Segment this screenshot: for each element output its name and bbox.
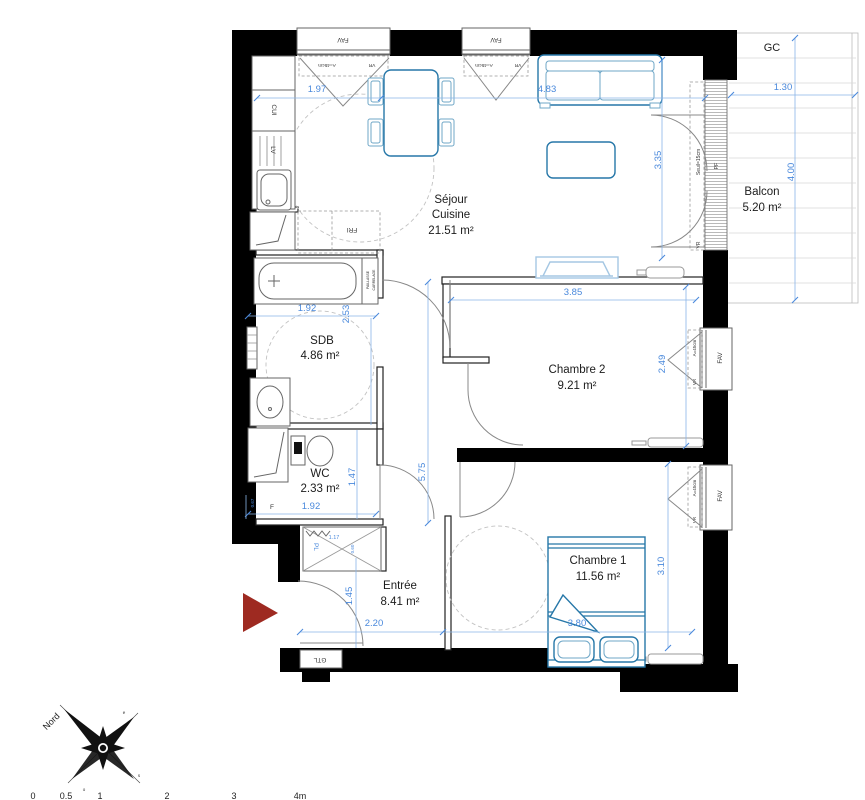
vr-label: VR	[368, 62, 375, 68]
radiator-sejour	[536, 257, 618, 278]
balcon-name: Balcon	[744, 186, 779, 198]
window-chambre2: FAV A=45cm VR	[668, 328, 732, 390]
dim-balcony-width: 1.30	[774, 82, 793, 93]
dining-table	[368, 70, 454, 156]
radiator-chambre2	[632, 438, 703, 447]
fri-label: FRI	[347, 226, 358, 233]
dim-sdb-width: 1.92	[298, 303, 317, 314]
sdb-area: 4.86 m²	[301, 350, 340, 362]
carrelage-label: CARRELAGE	[372, 269, 376, 291]
compass-rose-icon: Nord e s o	[41, 705, 141, 792]
pl-label: PL	[312, 543, 319, 551]
seuil-label: Seuil=15cm	[696, 149, 702, 175]
shutter-height-label: A=45cm	[318, 62, 336, 68]
dim-closet-depth: 0.60	[350, 544, 355, 553]
chambre2-name: Chambre 2	[549, 364, 606, 376]
scale-1: 1	[97, 791, 102, 800]
compass-north-label: Nord	[41, 711, 62, 732]
window-sejour: FAV A=45cm VR	[462, 28, 530, 100]
wc-area: 2.33 m²	[301, 483, 340, 495]
shutter-height-label: A=45cm	[475, 62, 493, 68]
radiator-balcony-door	[637, 267, 684, 278]
dim-chambre2-width: 3.85	[564, 287, 583, 298]
entry-arrow-icon	[243, 593, 278, 632]
dim-chambre2-height: 2.49	[657, 355, 668, 374]
fav-label: FAV	[717, 352, 724, 364]
gc-label: GC	[764, 42, 781, 54]
entree-name: Entrée	[383, 580, 417, 592]
balcon-area: 5.20 m²	[743, 202, 782, 214]
sdb-name: SDB	[310, 335, 334, 347]
dim-sdb-height: 2.53	[341, 305, 352, 324]
dim-wc-width: 1.92	[302, 501, 321, 512]
vr-label: VR	[514, 62, 521, 68]
scale-05: 0.5	[60, 791, 73, 800]
paillasse-label: PAILLASSE	[366, 270, 370, 289]
floor-plan-drawing: GC Balcon 5.20 m² FAV A=45cm VR FAV A=45…	[0, 0, 865, 800]
dim-entree-width: 2.20	[365, 618, 384, 629]
dim-wc-offset: 0.67	[250, 498, 255, 507]
window-chambre1: FAV A=45cm VR	[668, 465, 732, 530]
shutter-height-label: A=45cm	[692, 339, 697, 356]
dim-balcony-height: 4.00	[786, 163, 797, 182]
scale-0: 0	[30, 791, 35, 800]
gtl-label: GTL	[313, 656, 326, 663]
closet-pl: PL	[303, 527, 381, 571]
lv-label: LV	[269, 146, 276, 154]
entree-area: 8.41 m²	[381, 596, 420, 608]
shutter-height-label: A=45cm	[692, 479, 697, 496]
dim-kitchen-width: 1.97	[308, 84, 327, 95]
scale-4m: 4m	[294, 791, 307, 800]
compass-east-label: e	[123, 710, 126, 715]
dim-sejour-height: 3.35	[653, 151, 664, 170]
sofa	[538, 55, 662, 108]
sejour-name: Séjour	[434, 194, 467, 206]
dim-closet-width: 1.17	[329, 535, 340, 541]
dim-entree-height: 1.45	[344, 587, 355, 606]
dim-chambre1-height: 3.10	[656, 557, 667, 576]
scale-3: 3	[231, 791, 236, 800]
compass-west-label: o	[83, 787, 86, 792]
chambre2-area: 9.21 m²	[558, 380, 597, 392]
f-label: F	[270, 504, 274, 511]
dim-chambre1-width: 3.80	[568, 618, 587, 629]
turning-circle-entree	[446, 526, 550, 630]
fav-label: FAV	[490, 36, 502, 43]
sejour-area: 21.51 m²	[428, 225, 474, 237]
fav-label: FAV	[337, 36, 349, 43]
dim-wc-height: 1.47	[347, 468, 358, 487]
compass-south-label: s	[138, 773, 141, 778]
dim-sejour-width: 4.83	[538, 84, 557, 95]
chambre1-area: 11.56 m²	[576, 571, 621, 583]
dim-hall-height: 5.75	[417, 463, 428, 482]
fav-label: FAV	[717, 490, 724, 502]
wc-name: WC	[310, 468, 329, 480]
scale-2: 2	[164, 791, 169, 800]
pf-label: PF	[714, 163, 720, 170]
chambre1-name: Chambre 1	[570, 555, 627, 567]
scale-bar: 0 0.5 1 2 3 4m	[30, 791, 306, 800]
cui-label: CUI	[270, 104, 277, 115]
floor-plan-page: GC Balcon 5.20 m² FAV A=45cm VR FAV A=45…	[0, 0, 865, 800]
coffee-table	[547, 142, 615, 178]
gtl-box: GTL	[300, 650, 342, 668]
sejour-name2: Cuisine	[432, 209, 470, 221]
